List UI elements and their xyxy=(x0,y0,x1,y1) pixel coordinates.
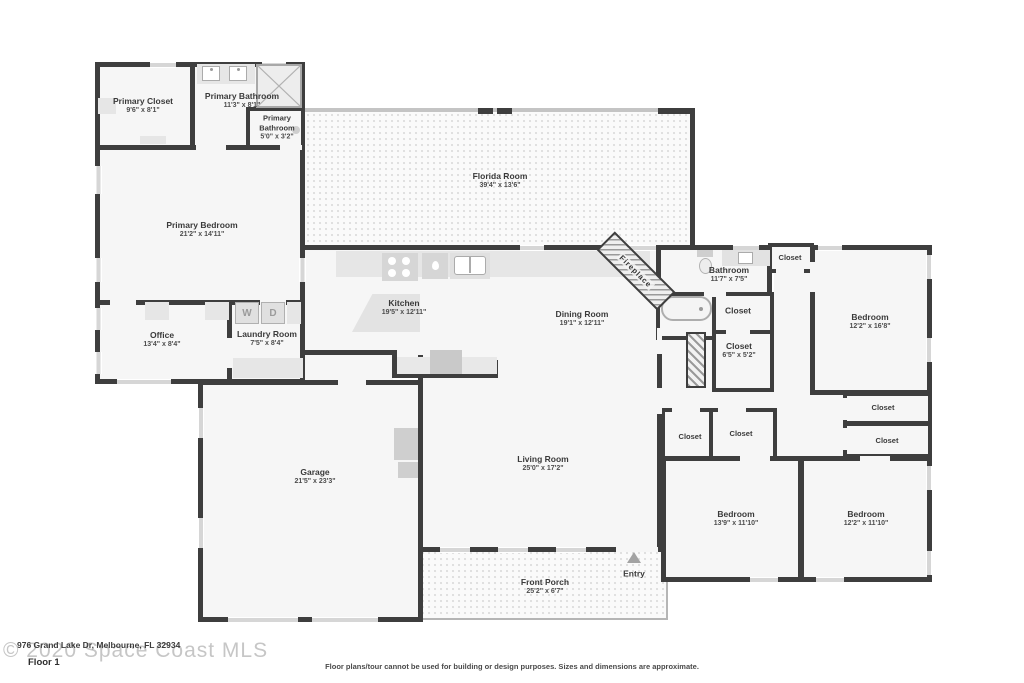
sink-icon xyxy=(738,252,753,264)
label-dining-room: Dining Room19'1" x 12'11" xyxy=(556,309,609,329)
door-opening xyxy=(843,398,847,420)
office-furniture xyxy=(205,302,229,320)
door-opening xyxy=(110,300,136,305)
door-opening xyxy=(338,380,366,385)
label-bedroom-bottom-right: Bedroom12'2" x 11'10" xyxy=(844,509,889,529)
window xyxy=(95,166,102,194)
wall-chase-hatched xyxy=(686,332,706,388)
faucet-dot xyxy=(210,68,213,71)
label-closet-right-top: Closet xyxy=(872,403,895,413)
window xyxy=(498,547,528,553)
refrigerator-icon xyxy=(430,350,462,374)
window xyxy=(95,352,102,374)
label-closet-hall-small: Closet xyxy=(779,253,802,263)
window xyxy=(299,258,306,282)
label-bedroom-right: Bedroom12'2" x 16'8" xyxy=(849,312,890,332)
disclaimer-text: Floor plans/tour cannot be used for buil… xyxy=(0,662,1024,671)
burner-dot xyxy=(388,257,396,265)
label-front-porch: Front Porch25'2" x 6'7" xyxy=(521,577,569,597)
wall-kitchen-bottom xyxy=(300,350,397,355)
laundry-counter xyxy=(233,358,303,378)
door-opening xyxy=(740,456,770,461)
label-primary-bathroom-2: Primary Bathroom5'0" x 3'2" xyxy=(252,114,302,143)
window xyxy=(926,551,932,575)
door-opening xyxy=(280,145,302,150)
window xyxy=(926,338,932,362)
entry-arrow-icon xyxy=(627,552,641,563)
door-opening xyxy=(196,145,226,150)
label-kitchen: Kitchen19'5" x 12'11" xyxy=(382,298,427,318)
label-primary-bathroom: Primary Bathroom11'3" x 8'1" xyxy=(205,91,279,111)
label-office: Office13'4" x 8'4" xyxy=(143,330,180,350)
hallway xyxy=(774,268,810,458)
label-closet-bed2-right: Closet xyxy=(730,429,753,439)
label-closet-hall: Closet6'5" x 5'2" xyxy=(722,341,755,361)
washer-icon: W xyxy=(235,302,259,324)
label-closet-bath: Closet xyxy=(725,305,751,316)
tub-drain-dot xyxy=(699,307,703,311)
door-opening xyxy=(810,262,815,292)
door-opening xyxy=(860,456,890,461)
door-opening xyxy=(726,330,750,334)
window xyxy=(818,245,842,251)
window xyxy=(816,577,844,583)
listing-address: 976 Grand Lake Dr, Melbourne, FL 32934 xyxy=(17,640,180,650)
garage-appliance xyxy=(398,462,418,478)
burner-dot xyxy=(402,269,410,277)
dishwasher-drop xyxy=(432,261,439,270)
door-opening xyxy=(704,292,726,297)
label-bedroom-bottom-left: Bedroom13'9" x 11'10" xyxy=(714,509,759,529)
label-primary-bedroom: Primary Bedroom21'2" x 14'11" xyxy=(166,220,237,240)
wall-post xyxy=(658,108,695,114)
window xyxy=(750,577,778,583)
window xyxy=(228,617,298,623)
door-opening xyxy=(672,408,700,412)
window xyxy=(117,379,171,385)
door-opening xyxy=(776,268,804,273)
window xyxy=(312,617,378,623)
label-living-room: Living Room25'0" x 17'2" xyxy=(517,454,568,474)
label-closet-right-bottom: Closet xyxy=(876,436,899,446)
floor-plan: W D Fireplace Primary Closet9'6" x 8'1" … xyxy=(0,0,1024,683)
sink-divider xyxy=(469,257,471,273)
window xyxy=(926,466,932,490)
toilet-tank xyxy=(697,250,713,257)
window xyxy=(95,258,102,282)
label-primary-closet: Primary Closet9'6" x 8'1" xyxy=(113,96,173,116)
window xyxy=(95,308,102,330)
label-florida-room: Florida Room39'4" x 13'6" xyxy=(473,171,528,191)
bathtub-icon xyxy=(661,296,712,321)
window xyxy=(198,518,204,548)
door-opening xyxy=(657,388,662,414)
office-furniture xyxy=(145,302,169,320)
laundry-counter xyxy=(287,302,301,324)
dryer-label: D xyxy=(269,308,276,319)
wall-post xyxy=(478,108,493,114)
door-opening xyxy=(843,428,847,450)
stove-icon xyxy=(382,253,418,281)
window xyxy=(440,547,470,553)
door-opening xyxy=(657,328,662,354)
label-entry: Entry xyxy=(623,568,645,579)
burner-dot xyxy=(402,257,410,265)
faucet-dot xyxy=(237,68,240,71)
window xyxy=(150,62,176,68)
label-garage: Garage21'5" x 23'3" xyxy=(294,467,335,487)
label-bathroom: Bathroom11'7" x 7'5" xyxy=(709,265,749,285)
washer-label: W xyxy=(242,308,251,319)
hallway xyxy=(806,392,846,456)
door-opening xyxy=(227,338,232,368)
water-heater xyxy=(394,428,418,460)
label-closet-bed2-left: Closet xyxy=(679,432,702,442)
burner-dot xyxy=(388,269,396,277)
closet-shelf xyxy=(140,136,166,144)
window xyxy=(926,255,932,279)
window xyxy=(198,408,204,438)
wall-post xyxy=(497,108,512,114)
dryer-icon: D xyxy=(261,302,285,324)
room-closet-hall xyxy=(712,330,774,392)
door-opening xyxy=(718,408,746,412)
label-laundry: Laundry Room7'5" x 8'4" xyxy=(237,329,297,349)
room-garage xyxy=(198,380,423,622)
window xyxy=(556,547,586,553)
